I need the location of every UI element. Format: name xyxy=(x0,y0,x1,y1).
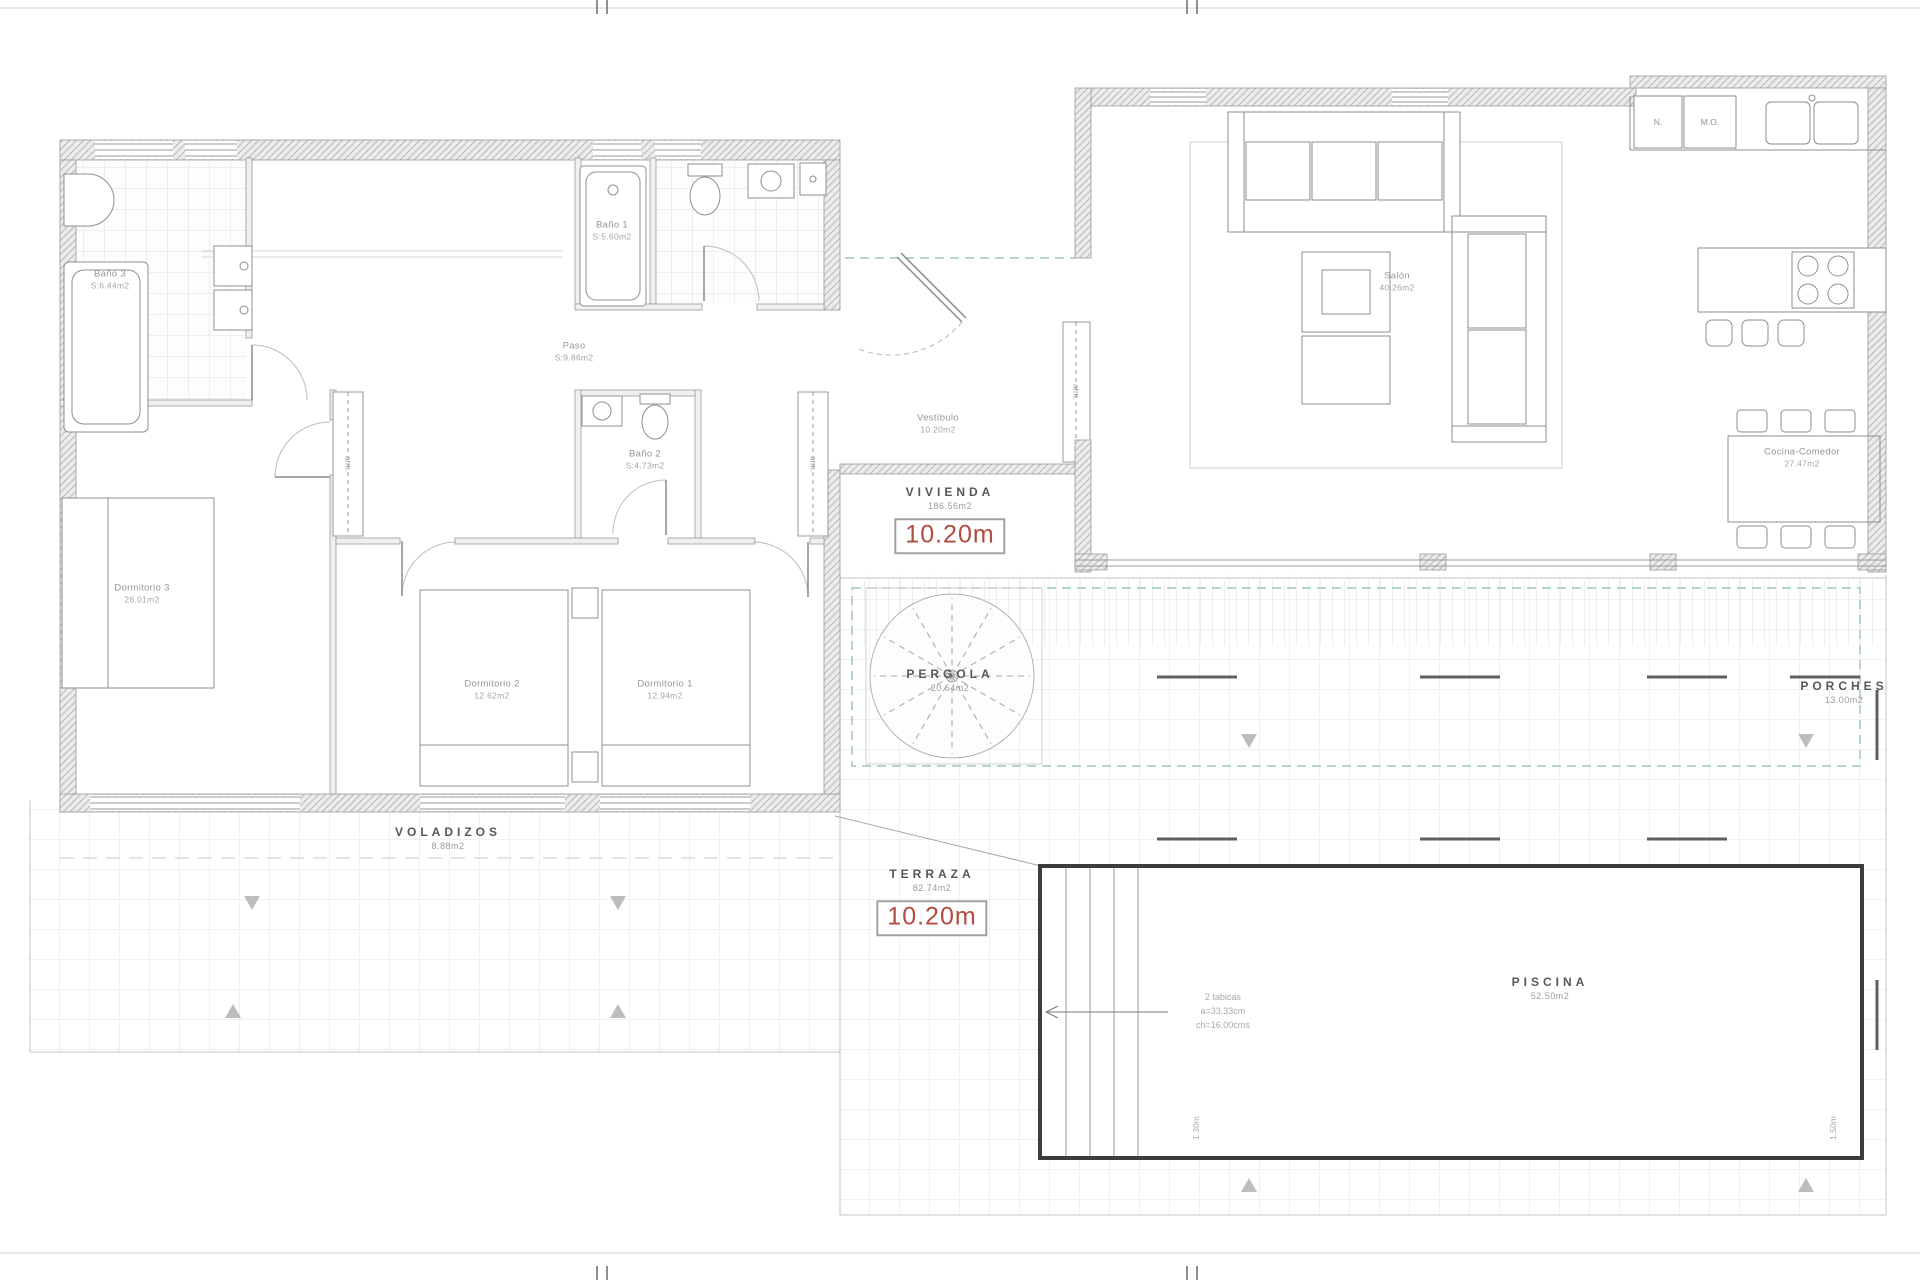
floor-plan-page: Baño 3 S:6.44m2 Baño 1 S:5.60m2 Paso S:9… xyxy=(0,0,1920,1280)
room-label-dormitorio3: Dormitorio 3 26.01m2 xyxy=(114,582,169,605)
terrace-glass-doors xyxy=(90,795,750,811)
kitchen xyxy=(1630,95,1886,548)
room-label-dormitorio1: Dormitorio 1 12.94m2 xyxy=(637,678,692,701)
room-label-salon: Salón 40.26m2 xyxy=(1379,270,1414,293)
fridge-label: N. xyxy=(1654,117,1663,127)
wardrobe-label-2: arm. xyxy=(809,456,818,472)
microwave-label: M.O. xyxy=(1701,117,1719,127)
living-wing xyxy=(1075,76,1886,572)
zone-label-piscina: PISCINA 52.50m2 xyxy=(1512,975,1589,1001)
living-room xyxy=(1190,112,1562,468)
pool xyxy=(1040,866,1862,1158)
floor-plan-drawing xyxy=(0,0,1920,1280)
zone-label-porches: PORCHES 13.00m2 xyxy=(1800,679,1887,705)
pool-depth-right: 1.50m xyxy=(1828,1116,1838,1140)
room-label-vestibulo: Vestíbulo 10.20m2 xyxy=(917,412,959,435)
wardrobe-label-3: arm. xyxy=(1072,384,1081,400)
wardrobe-label-1: arm. xyxy=(344,456,353,472)
room-label-bano3: Baño 3 S:6.44m2 xyxy=(91,268,130,291)
room-label-dormitorio2: Dormitorio 2 12.62m2 xyxy=(464,678,519,701)
height-badge-vivienda: 10.20m xyxy=(894,518,1005,554)
zone-label-terraza: TERRAZA 82.74m2 xyxy=(889,867,974,893)
room-label-cocina-comedor: Cocina-Comedor 27.47m2 xyxy=(1764,446,1840,469)
height-badge-terraza: 10.20m xyxy=(876,900,987,936)
room-label-paso: Paso S:9.86m2 xyxy=(555,340,594,363)
south-glass-wall xyxy=(1075,560,1886,566)
zone-label-voladizos: VOLADIZOS 8.88m2 xyxy=(395,825,501,851)
pool-steps-note: 2 tabicas a=33.33cm ch=16.00cms xyxy=(1196,991,1250,1033)
pool-depth-left: 1.30m xyxy=(1191,1116,1201,1140)
zone-label-vivienda: VIVIENDA 186.56m2 xyxy=(906,485,995,511)
beds xyxy=(62,498,750,786)
room-label-bano1: Baño 1 S:5.60m2 xyxy=(593,219,632,242)
zone-label-pergola: PERGOLA 20.64m2 xyxy=(906,667,993,693)
room-label-bano2: Baño 2 S:4.73m2 xyxy=(626,448,665,471)
